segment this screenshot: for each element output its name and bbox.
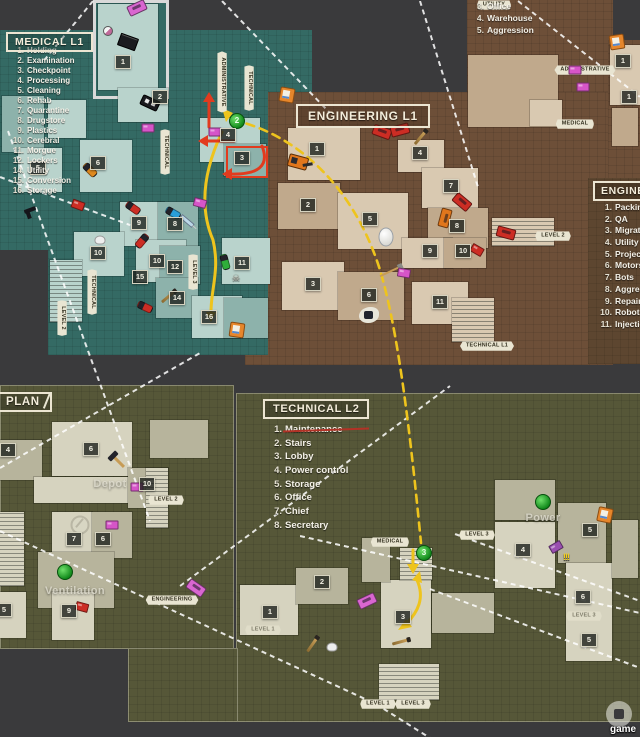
legend-item: 4. Power control xyxy=(266,465,348,479)
room-number: 6 xyxy=(101,534,105,543)
map-marker xyxy=(142,124,155,133)
legend-item: 7. Bots xyxy=(594,272,640,284)
legend-item-label: Lockers xyxy=(27,156,58,165)
legend-item-number: 5. xyxy=(594,249,612,259)
map-marker-label: 3 xyxy=(417,546,431,560)
room-number-badge: 5 xyxy=(0,603,12,617)
map-marker: 2 xyxy=(229,113,245,129)
level-tag: LEVEL 3 xyxy=(459,530,495,540)
room-number: 4 xyxy=(226,130,230,139)
technical-title: TECHNICAL L2 xyxy=(263,399,369,419)
room-number-badge: 6 xyxy=(361,288,377,302)
room-number-badge: 7 xyxy=(66,532,82,546)
room-number-badge: 6 xyxy=(575,590,591,604)
medical-map-area-ext xyxy=(268,30,312,92)
room-number-badge: 3 xyxy=(234,151,250,165)
room-number: 10 xyxy=(143,479,151,488)
level-tag-text: LEVEL 3 xyxy=(401,700,425,706)
legend-item-label: Repairs xyxy=(615,296,640,306)
map-room xyxy=(452,298,494,342)
legend-item: 8. Secretary xyxy=(266,520,348,534)
area-label: Depot xyxy=(93,478,126,490)
room-number: 7 xyxy=(72,534,76,543)
room-number: 9 xyxy=(428,246,432,255)
level-tag-text: LEVEL 1 xyxy=(251,626,275,632)
legend-item-number: 10. xyxy=(8,136,24,145)
legend-item-number: 4. xyxy=(470,13,484,23)
legend-item-label: Storage xyxy=(285,479,320,490)
room-number-badge: 11 xyxy=(432,295,448,309)
map-marker xyxy=(596,506,614,524)
legend-item: 6. Rehab xyxy=(8,96,75,106)
room-number: 3 xyxy=(240,153,244,162)
room-number: 1 xyxy=(621,56,625,65)
legend-item-label: Processing xyxy=(27,76,70,85)
room-number-badge: 9 xyxy=(422,244,438,258)
room-number: 4 xyxy=(418,148,422,157)
legend-item-label: Storage xyxy=(27,186,57,195)
technical-map-area-ext xyxy=(128,648,238,722)
level-tag: MEDICAL xyxy=(556,119,594,129)
level-tag-text: LEVEL 3 xyxy=(465,531,489,537)
map-marker: 3 xyxy=(416,545,432,561)
legend-item: 10. Robots xyxy=(594,307,640,319)
room-number-badge: 10 xyxy=(90,246,106,260)
room-number-badge: 1 xyxy=(309,142,325,156)
room-number-badge: 3 xyxy=(305,277,321,291)
legend-item-label: Stairs xyxy=(285,438,311,449)
legend-item-label: Secretary xyxy=(285,520,328,531)
legend-item: 2. Examination xyxy=(8,56,75,66)
legend-item: 11. Injection xyxy=(594,319,640,331)
legend-item-label: Plastics xyxy=(27,126,57,135)
room-number-badge: 10 xyxy=(139,477,155,491)
legend-item-number: 1. xyxy=(266,424,282,435)
legend-item-label: Injection xyxy=(615,319,640,329)
level-tag-text: LEVEL 2 xyxy=(154,496,178,502)
room-number: 3 xyxy=(311,279,315,288)
legend-item-number: 8. xyxy=(594,284,612,294)
area-label: Ventilation xyxy=(45,585,105,597)
legend-item: 5. Projects xyxy=(594,249,640,261)
level-tag-text: TECHNICAL xyxy=(90,275,96,309)
room-number-badge: 3 xyxy=(395,610,411,624)
legend-item-label: Utility xyxy=(615,237,639,247)
legend-item-label: Office xyxy=(285,492,312,503)
engineering-l2-legend: 1. Packing 2. QA 3. Migration 4. Utility… xyxy=(594,202,640,331)
room-number: 9 xyxy=(67,606,71,615)
legend-item-label: Packing xyxy=(615,202,640,212)
map-marker-label xyxy=(407,638,408,641)
legend-item-number: 11. xyxy=(594,319,612,329)
legend-item-number: 15. xyxy=(8,176,24,185)
room-number-badge: 8 xyxy=(449,219,465,233)
legend-item-number: 7. xyxy=(594,272,612,282)
room-number-badge: 5 xyxy=(581,633,597,647)
legend-item: 14. Utility xyxy=(8,166,75,176)
legend-item: 9. Repairs xyxy=(594,296,640,308)
room-number: 5 xyxy=(587,635,591,644)
map-marker xyxy=(577,83,590,92)
legend-item: 10. Cerebral xyxy=(8,136,75,146)
legend-item-label: Aggression xyxy=(615,284,640,294)
room-number-badge: 2 xyxy=(152,90,168,104)
legend-item-number: 3. xyxy=(8,66,24,75)
legend-item-number: 11. xyxy=(8,146,24,155)
legend-item-label: Aggression xyxy=(487,25,534,35)
room-number: 6 xyxy=(581,592,585,601)
room-number: 6 xyxy=(367,290,371,299)
level-tag: LEVEL 1 xyxy=(360,699,396,709)
legend-item-number: 5. xyxy=(470,25,484,35)
legend-item: 4. Warehouse xyxy=(470,13,534,25)
room-number: 3 xyxy=(401,612,405,621)
map-marker xyxy=(229,322,246,339)
medical-legend: 1. Holding 2. Examination 3. Checkpoint … xyxy=(8,46,75,196)
room-number: 10 xyxy=(459,246,467,255)
level-tag: LEVEL 2 xyxy=(148,495,184,505)
engineering-corner-legend: 3. Office 4. Warehouse 5. Aggression xyxy=(470,1,534,37)
legend-item: 5. Cleaning xyxy=(8,86,75,96)
map-marker: !!! xyxy=(563,552,569,562)
room-number: 9 xyxy=(137,218,141,227)
level-tag-text: MEDICAL xyxy=(377,538,403,544)
legend-item-label: Drugstore xyxy=(27,116,65,125)
legend-item-label: Motors xyxy=(615,260,640,270)
map-marker-label xyxy=(231,323,244,325)
level-tag: MEDICAL xyxy=(371,537,409,547)
legend-item-number: 2. xyxy=(594,214,612,224)
legend-item-label: Power control xyxy=(285,465,348,476)
map-marker-label: 2 xyxy=(230,114,244,128)
legend-item-number: 3. xyxy=(470,1,484,11)
legend-item-number: 12. xyxy=(8,156,24,165)
room-number-badge: 10 xyxy=(455,244,471,258)
legend-item: 15. Conversion xyxy=(8,176,75,186)
level-tag: ENGINEERING xyxy=(146,595,199,605)
medical-title: MEDICAL L1 xyxy=(6,32,93,52)
room-number: 14 xyxy=(173,293,181,302)
legend-item-number: 10. xyxy=(594,307,612,317)
room-number-badge: 4 xyxy=(412,146,428,160)
map-marker-label: !!! xyxy=(563,552,569,562)
room-number: 11 xyxy=(436,297,444,306)
legend-item-number: 3. xyxy=(266,451,282,462)
legend-item-number: 4. xyxy=(266,465,282,476)
room-number: 5 xyxy=(588,525,592,534)
legend-item-label: Utility xyxy=(27,166,49,175)
level-tag-text: LEVEL 1 xyxy=(366,700,390,706)
area-label-text: Ventilation xyxy=(45,585,105,597)
room-number-badge: 16 xyxy=(201,310,217,324)
room-number: 2 xyxy=(158,92,162,101)
map-room xyxy=(0,512,24,586)
map-marker-label xyxy=(315,638,317,640)
room-number: 5 xyxy=(368,214,372,223)
legend-item: 1. Maintenance xyxy=(266,424,348,438)
legend-item: 6. Office xyxy=(266,492,348,506)
legend-item: 3. Office xyxy=(470,1,534,13)
legend-item: 16. Storage xyxy=(8,186,75,196)
room-number-badge: 4 xyxy=(515,543,531,557)
room-number-badge: 4 xyxy=(220,128,236,142)
legend-item: 9. Plastics xyxy=(8,126,75,136)
room-number-badge: 2 xyxy=(314,575,330,589)
level-tag-text: LEVEL 2 xyxy=(60,306,66,330)
room-number-badge: 1 xyxy=(115,55,131,69)
legend-item-label: Warehouse xyxy=(487,13,533,23)
room-number: 11 xyxy=(238,258,246,267)
level-tag-text: TECHNICAL L1 xyxy=(466,342,508,348)
room-number: 2 xyxy=(320,577,324,586)
legend-item-label: Checkpoint xyxy=(27,66,71,75)
map-marker-label xyxy=(600,507,613,510)
level-tag: TECHNICAL xyxy=(160,129,170,175)
legend-item-label: Conversion xyxy=(27,176,71,185)
level-tag: TECHNICAL xyxy=(244,65,254,111)
map-marker-label xyxy=(78,602,89,605)
legend-item-label: Cleaning xyxy=(27,86,61,95)
legend-item-label: Migration xyxy=(615,225,640,235)
map-marker xyxy=(57,564,73,580)
legend-item-number: 8. xyxy=(8,116,24,125)
room-number: 16 xyxy=(205,312,213,321)
legend-item-number: 16. xyxy=(8,186,24,195)
legend-item: 3. Lobby xyxy=(266,451,348,465)
room-number-badge: 4 xyxy=(0,443,16,457)
room-number: 4 xyxy=(6,445,10,454)
level-tag: ADMINISTRATIVE xyxy=(554,65,615,75)
legend-item: 6. Motors xyxy=(594,260,640,272)
legend-item: 5. Aggression xyxy=(470,25,534,37)
room-number: 1 xyxy=(268,607,272,616)
level-tag: LEVEL 1 xyxy=(245,625,281,635)
level-tag: LEVEL 3 xyxy=(395,699,431,709)
engineering-title: ENGINEERING L1 xyxy=(296,104,430,128)
game-map-screenshot: Depot Ventilation Power UTILITY ADMINIST… xyxy=(0,0,640,737)
room-number: 4 xyxy=(521,545,525,554)
map-marker-label xyxy=(113,456,115,458)
room-number-badge: 9 xyxy=(131,216,147,230)
map-marker-label xyxy=(399,269,410,271)
room-number: 12 xyxy=(171,262,179,271)
legend-item-label: Office xyxy=(487,1,511,11)
map-room xyxy=(379,664,439,700)
area-label-text: Depot xyxy=(93,478,126,490)
legend-item-label: Morgue xyxy=(27,146,56,155)
room-number-badge: 5 xyxy=(582,523,598,537)
technical-legend: 1. Maintenance 2. Stairs 3. Lobby 4. Pow… xyxy=(266,424,348,534)
room-number-badge: 11 xyxy=(234,256,250,270)
map-room xyxy=(612,520,638,578)
legend-item: 2. Stairs xyxy=(266,438,348,452)
room-number-badge: 7 xyxy=(443,179,459,193)
room-number-badge: 1 xyxy=(621,90,637,104)
level-tag-text: LEVEL 3 xyxy=(191,260,197,284)
legend-item-number: 2. xyxy=(266,438,282,449)
level-tag-text: TECHNICAL xyxy=(247,71,253,105)
room-number: 6 xyxy=(89,444,93,453)
legend-item-number: 6. xyxy=(594,260,612,270)
room-number: 1 xyxy=(627,92,631,101)
room-number-badge: 5 xyxy=(362,212,378,226)
legend-item: 11. Morgue xyxy=(8,146,75,156)
map-marker-label xyxy=(196,198,207,201)
legend-item-number: 1. xyxy=(594,202,612,212)
legend-item-number: 9. xyxy=(8,126,24,135)
level-tag: LEVEL 2 xyxy=(57,300,67,336)
room-number-badge: 1 xyxy=(262,605,278,619)
legend-item-label: Rehab xyxy=(27,96,51,105)
room-number: 10 xyxy=(153,256,161,265)
background-cutout xyxy=(0,250,48,357)
map-marker-label xyxy=(282,87,295,89)
map-marker xyxy=(535,494,551,510)
legend-item: 7. Chief xyxy=(266,506,348,520)
map-room xyxy=(150,420,208,458)
level-tag-text: TECHNICAL xyxy=(163,135,169,169)
legend-item-number: 9. xyxy=(594,296,612,306)
map-marker xyxy=(95,236,106,245)
legend-item: 8. Aggression xyxy=(594,284,640,296)
legend-item-number: 5. xyxy=(8,86,24,95)
room-number: 7 xyxy=(449,181,453,190)
legend-item-number: 4. xyxy=(8,76,24,85)
legend-item-label: Bots xyxy=(615,272,634,282)
map-marker xyxy=(106,521,119,530)
room-number-badge: 2 xyxy=(300,198,316,212)
room-number: 8 xyxy=(173,219,177,228)
legend-item: 8. Drugstore xyxy=(8,116,75,126)
room-number-badge: 6 xyxy=(95,532,111,546)
legend-item-label: Chief xyxy=(285,506,309,517)
legend-item: 3. Checkpoint xyxy=(8,66,75,76)
room-number: 1 xyxy=(121,57,125,66)
room-number-badge: 1 xyxy=(615,54,631,68)
level-tag: ADMINISTRATIVE xyxy=(217,51,227,112)
map-marker xyxy=(232,268,241,286)
map-marker xyxy=(327,643,338,652)
map-marker-label xyxy=(610,35,623,37)
room-number-badge: 12 xyxy=(167,260,183,274)
level-tag: TECHNICAL xyxy=(87,269,97,315)
map-room xyxy=(612,108,638,146)
room-number: 1 xyxy=(315,144,319,153)
room-number-badge: 6 xyxy=(90,156,106,170)
legend-item-number: 6. xyxy=(266,492,282,503)
legend-item: 12. Lockers xyxy=(8,156,75,166)
legend-item-label: Projects xyxy=(615,249,640,259)
legend-item-label: Cerebral xyxy=(27,136,59,145)
room-number: 10 xyxy=(94,248,102,257)
room-number-badge: 10 xyxy=(149,254,165,268)
map-marker xyxy=(569,66,582,75)
level-tag: LEVEL 3 xyxy=(566,611,602,621)
room-number: 2 xyxy=(306,200,310,209)
map-marker xyxy=(103,26,113,36)
room-number: 8 xyxy=(455,221,459,230)
map-marker xyxy=(379,228,394,247)
room-number-badge: 8 xyxy=(167,217,183,231)
legend-item-label: Robots xyxy=(615,307,640,317)
legend-item: 4. Utility xyxy=(594,237,640,249)
room-number-badge: 6 xyxy=(83,442,99,456)
legend-item-number: 5. xyxy=(266,479,282,490)
legend-item: 2. QA xyxy=(594,214,640,226)
level-tag: LEVEL 2 xyxy=(535,231,571,241)
legend-item: 5. Storage xyxy=(266,479,348,493)
map-room xyxy=(432,593,494,633)
level-tag: LEVEL 3 xyxy=(188,254,198,290)
map-marker-label xyxy=(424,131,426,133)
legend-item-label: Maintenance xyxy=(285,424,343,435)
legend-item-number: 14. xyxy=(8,166,24,175)
area-label: Power xyxy=(525,512,560,524)
level-tag-text: ENGINEERING xyxy=(152,596,193,602)
level-tag-text: ADMINISTRATIVE xyxy=(220,57,226,106)
legend-item-label: Quarantine xyxy=(27,106,69,115)
room-number-badge: 14 xyxy=(169,291,185,305)
room-number: 15 xyxy=(136,272,144,281)
map-marker xyxy=(609,34,626,51)
watermark-text: game xyxy=(610,724,636,735)
legend-item-number: 2. xyxy=(8,56,24,65)
legend-item-number: 8. xyxy=(266,520,282,531)
level-tag-text: LEVEL 2 xyxy=(541,232,565,238)
level-tag-text: LEVEL 3 xyxy=(572,612,596,618)
level-tag: TECHNICAL L1 xyxy=(460,341,514,351)
legend-item-label: QA xyxy=(615,214,628,224)
legend-item-label: Examination xyxy=(27,56,75,65)
room-number-badge: 15 xyxy=(132,270,148,284)
room-number-badge: 9 xyxy=(61,604,77,618)
legend-item: 7. Quarantine xyxy=(8,106,75,116)
legend-item-label: Lobby xyxy=(285,451,314,462)
room-number: 5 xyxy=(2,605,6,614)
legend-item: 1. Packing xyxy=(594,202,640,214)
level-tag-text: MEDICAL xyxy=(562,120,588,126)
map-marker xyxy=(278,86,295,103)
area-label-text: Power xyxy=(525,512,560,524)
legend-item-number: 3. xyxy=(594,225,612,235)
legend-item-number: 4. xyxy=(594,237,612,247)
room-number: 6 xyxy=(96,158,100,167)
legend-item: 4. Processing xyxy=(8,76,75,86)
engineering-l2-title: ENGINEERING L2 xyxy=(593,181,640,201)
legend-item: 3. Migration xyxy=(594,225,640,237)
legend-item-number: 6. xyxy=(8,96,24,105)
legend-item-number: 7. xyxy=(8,106,24,115)
legend-item-number: 7. xyxy=(266,506,282,517)
